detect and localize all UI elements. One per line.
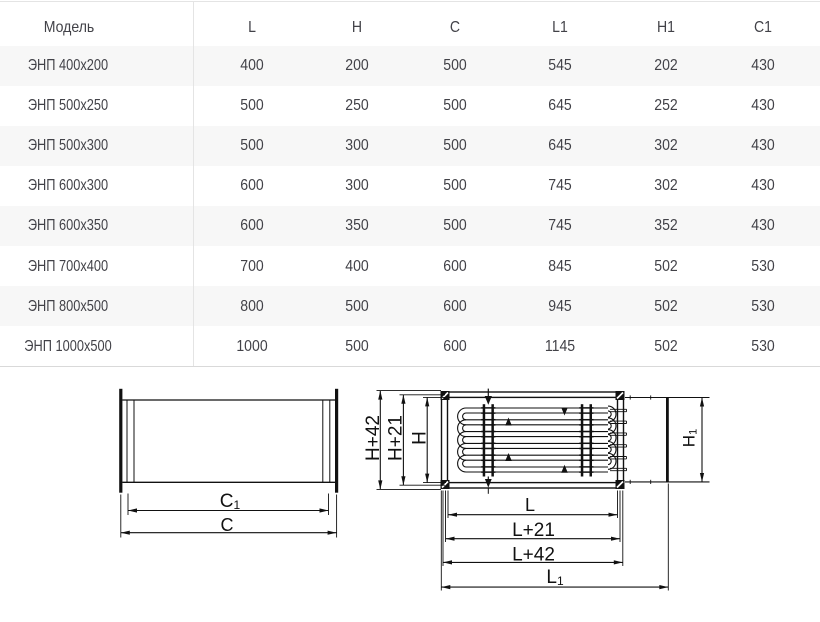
svg-text:H+21: H+21	[385, 415, 406, 461]
svg-text:H: H	[409, 431, 430, 445]
svg-text:L+21: L+21	[512, 520, 555, 541]
svg-text:H+42: H+42	[363, 415, 384, 461]
svg-text:L: L	[525, 495, 535, 515]
svg-text:C: C	[221, 515, 234, 535]
svg-text:C1: C1	[220, 491, 241, 512]
svg-text:H1: H1	[680, 429, 700, 447]
svg-text:L1: L1	[546, 567, 564, 588]
svg-text:L+42: L+42	[512, 544, 555, 565]
